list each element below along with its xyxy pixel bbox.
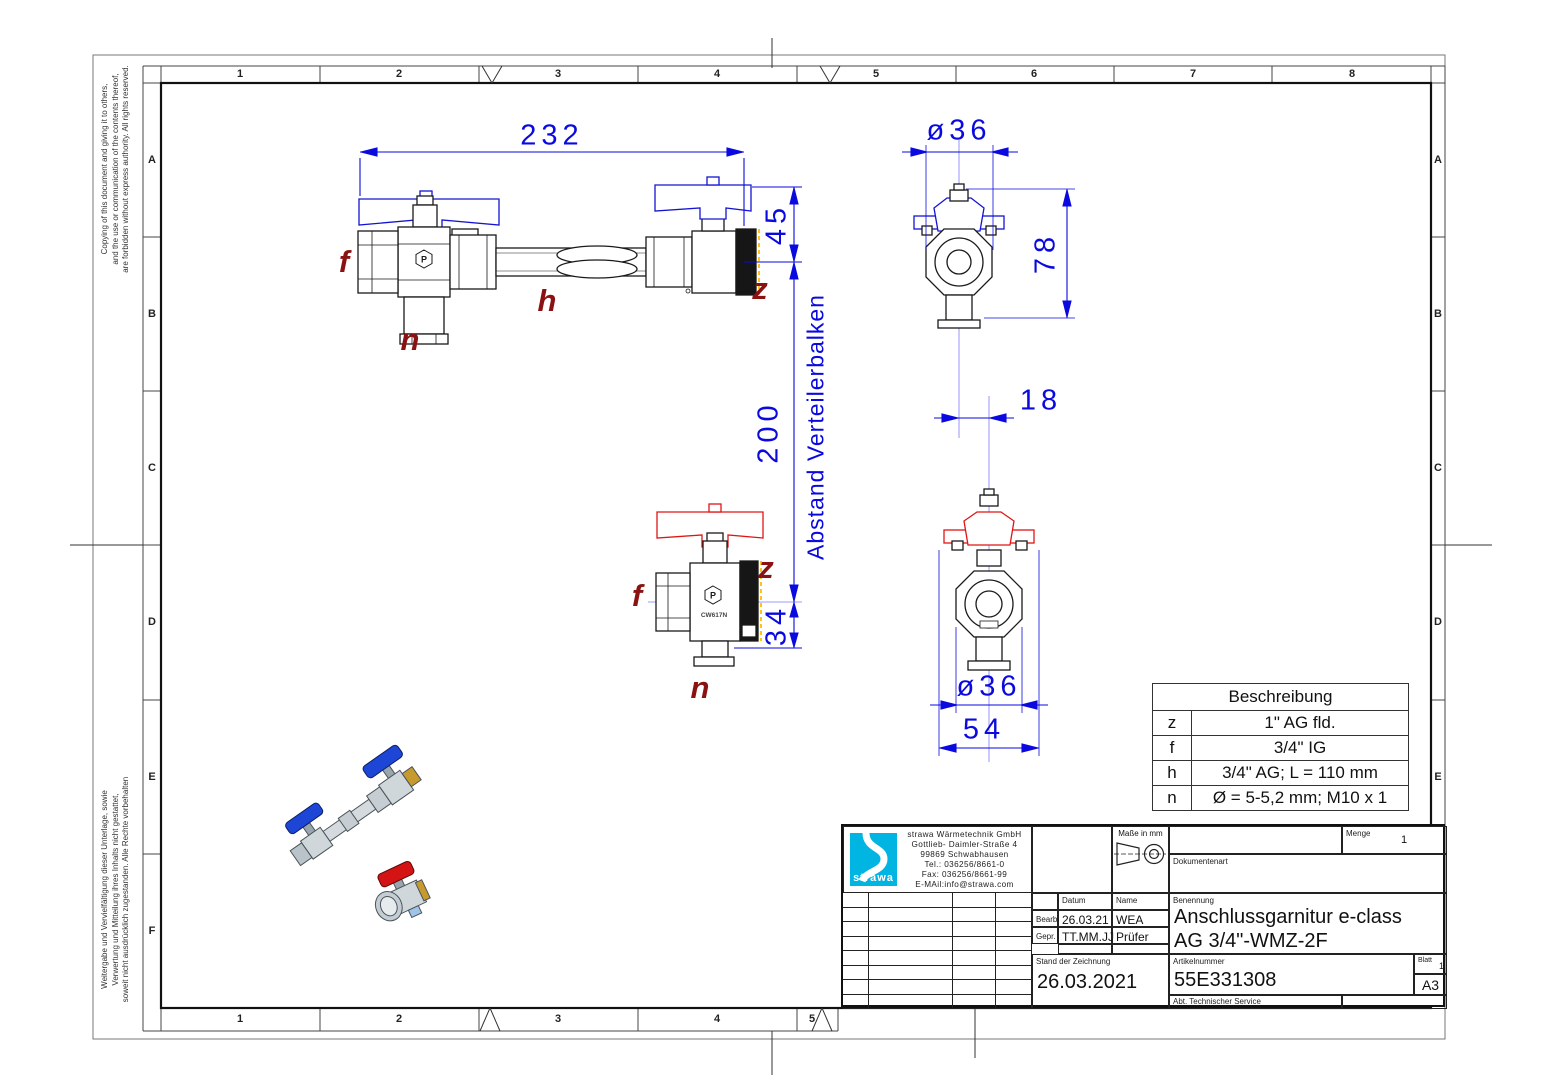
revision-cell [953,966,996,981]
grid-col-top-5: 5 [873,68,879,80]
sheet-number-cell: Blatt 1 [1414,954,1447,974]
document-type-label: Dokumentenart [1173,857,1228,866]
company-name: strawa Wärmetechnik GmbH [898,830,1031,840]
grid-col-bottom-4: 4 [714,1013,720,1025]
port-label-n-red: n [691,670,710,706]
grid-row-left-B: B [148,308,156,320]
company-cell: strawa strawa Wärmetechnik GmbH Gottlieb… [843,826,1032,893]
grid-row-left-A: A [148,154,156,166]
iso-valve-red [363,859,434,930]
designation-line1: Anschlussgarnitur e-class [1174,906,1402,929]
company-street: Gottlieb- Daimler-Straße 4 [898,840,1031,850]
revision-cell [869,980,953,995]
port-label-z-top: z [752,271,768,307]
grid-col-top-6: 6 [1031,68,1037,80]
quantity-value: 1 [1401,834,1407,846]
empty-cell [1032,893,1058,910]
bearb-label-cell: Bearb. [1032,910,1058,927]
drawing-date-cell: Stand der Zeichnung 26.03.2021 [1032,954,1169,1009]
company-email: E-MAil:info@strawa.com [898,880,1031,890]
dim-handle-width: 54 [963,714,1005,747]
iso-assembly-render [275,744,435,930]
dim-axis-offset: 18 [1020,385,1062,418]
revision-cell [869,937,953,952]
table-row: n Ø = 5-5,2 mm; M10 x 1 [1152,786,1409,811]
dim-valve-height-top: 45 [761,203,794,245]
revision-table [843,893,1032,1009]
revision-cell [869,908,953,923]
copyright-note-bottom: Weitergabe und Vervielfältigung dieser U… [100,767,132,1012]
butterfly-handle-blue-right [655,177,751,219]
bearb-date: 26.03.21 [1058,910,1112,927]
date-col-header: Datum [1058,893,1112,910]
dim-side-height: 78 [1030,232,1063,274]
units-cell: Maße in mm [1112,826,1169,893]
revision-cell [843,937,869,952]
gepr-label-cell: Gepr. [1032,927,1058,944]
title-block: strawa strawa Wärmetechnik GmbH Gottlieb… [841,824,1445,1007]
format-cell: A3 [1414,974,1447,995]
dim-valve-height-bottom: 34 [761,604,794,646]
maker-logo-hex-red: P [710,591,716,601]
row-key: f [1153,736,1192,760]
revision-cell [953,937,996,952]
grid-col-bottom-5: 5 [809,1013,815,1025]
article-number-cell: Artikelnummer 55E331308 [1169,954,1414,995]
grid-col-bottom-1: 1 [237,1013,243,1025]
dim-overall-length: 232 [520,120,583,153]
dim-distance-note: Abstand Verteilerbalken [803,294,830,560]
gepr-date: TT.MM.JJ [1058,927,1112,944]
revision-cell [869,966,953,981]
row-key: n [1153,786,1192,810]
port-label-f-red: f [632,578,642,614]
empty-cell [1169,826,1342,854]
dim-diameter-top: ø36 [927,115,992,148]
port-label-f-top: f [339,244,349,280]
department-label: Abt. Technischer Service [1173,997,1261,1006]
grid-row-left-D: D [148,616,156,628]
maker-logo-hex-top: P [421,255,427,265]
row-value: 3/4" IG [1192,736,1408,760]
revision-cell [996,937,1032,952]
table-row: h 3/4" AG; L = 110 mm [1152,761,1409,786]
company-tel: Tel.: 036256/8661-0 [898,860,1031,870]
empty-cell [1342,995,1447,1009]
grid-col-top-8: 8 [1349,68,1355,80]
revision-cell [953,980,996,995]
dim-diameter-bottom: ø36 [957,671,1022,704]
revision-cell [843,951,869,966]
end-handle-red [944,512,1034,545]
grid-row-left-F: F [149,925,156,937]
grid-row-right-C: C [1434,462,1442,474]
revision-cell [843,966,869,981]
quantity-label: Menge [1346,829,1370,838]
copyright-note-top: Copying of this document and giving it t… [100,43,132,295]
revision-cell [996,980,1032,995]
grid-row-right-E: E [1434,771,1441,783]
revision-cell [953,995,996,1010]
sheet-number-label: Blatt [1418,957,1432,964]
port-label-n-top: n [401,322,420,358]
revision-cell [843,908,869,923]
description-table-title: Beschreibung [1152,683,1409,711]
dim-distributor-distance: 200 [753,400,786,463]
revision-cell [843,980,869,995]
gepr-name: Prüfer [1112,927,1169,944]
grid-col-top-4: 4 [714,68,720,80]
revision-cell [953,908,996,923]
female-socket-f-red [656,573,690,631]
revision-cell [996,966,1032,981]
grid-row-right-B: B [1434,308,1442,320]
end-view-bottom [944,396,1034,762]
grid-col-top-7: 7 [1190,68,1196,80]
revision-cell [843,995,869,1010]
revision-cell [953,922,996,937]
revision-cell [996,908,1032,923]
table-row: z 1" AG fld. [1152,711,1409,736]
projection-symbol-icon [1113,833,1168,873]
name-col-header: Name [1112,893,1169,910]
row-value: 3/4" AG; L = 110 mm [1192,761,1408,785]
empty-cell [1058,944,1112,954]
designation-line2: AG 3/4"-WMZ-2F [1174,930,1328,953]
grid-col-top-2: 2 [396,68,402,80]
flex-pipe-h [496,246,646,278]
designation-cell: Benennung Anschlussgarnitur e-class AG 3… [1169,893,1447,954]
revision-cell [996,951,1032,966]
grid-row-left-E: E [148,771,155,783]
grid-col-bottom-3: 3 [555,1013,561,1025]
grid-col-top-3: 3 [555,68,561,80]
revision-cell [953,893,996,908]
company-fax: Fax: 036256/8661-99 [898,870,1031,880]
revision-cell [869,893,953,908]
company-city: 99869 Schwabhausen [898,850,1031,860]
empty-cell [1032,826,1112,893]
port-label-h: h [538,283,557,319]
revision-cell [996,893,1032,908]
grid-row-right-D: D [1434,616,1442,628]
department-cell: Abt. Technischer Service [1169,995,1342,1009]
drawing-sheet: P P CW617N 1 2 3 4 5 6 7 8 1 2 3 4 5 A B… [0,0,1541,1080]
quantity-cell: Menge 1 [1342,826,1447,854]
grid-col-top-1: 1 [237,68,243,80]
bearb-name: WEA [1112,910,1169,927]
revision-cell [953,951,996,966]
row-key: h [1153,761,1192,785]
company-logo: strawa [850,833,897,886]
company-logo-text: strawa [850,872,897,884]
female-socket-f [358,231,398,293]
revision-cell [869,951,953,966]
row-value: Ø = 5-5,2 mm; M10 x 1 [1192,786,1408,810]
drawing-date-value: 26.03.2021 [1037,971,1137,994]
sheet-number-value: 1 [1439,961,1444,971]
revision-cell [996,995,1032,1010]
revision-cell [843,922,869,937]
designation-label: Benennung [1173,896,1214,905]
grid-row-left-C: C [148,462,156,474]
end-view-top [914,140,1004,438]
port-label-z-red: z [758,550,774,586]
article-number-label: Artikelnummer [1173,957,1225,966]
table-row: f 3/4" IG [1152,736,1409,761]
grid-row-right-A: A [1434,154,1442,166]
row-value: 1" AG fld. [1192,711,1408,735]
revision-cell [843,893,869,908]
description-table: Beschreibung z 1" AG fld. f 3/4" IG h 3/… [1152,683,1409,811]
revision-cell [996,922,1032,937]
revision-cell [869,995,953,1010]
grid-col-bottom-2: 2 [396,1013,402,1025]
drawing-date-label: Stand der Zeichnung [1036,957,1110,966]
empty-cell [1112,944,1169,954]
revision-cell [869,922,953,937]
body-material-mark: CW617N [701,612,728,619]
article-number-value: 55E331308 [1174,969,1276,992]
part-marks: P P CW617N [416,250,727,619]
row-key: z [1153,711,1192,735]
document-type-cell: Dokumentenart [1169,854,1447,893]
bottom-port-n-red [694,641,734,666]
